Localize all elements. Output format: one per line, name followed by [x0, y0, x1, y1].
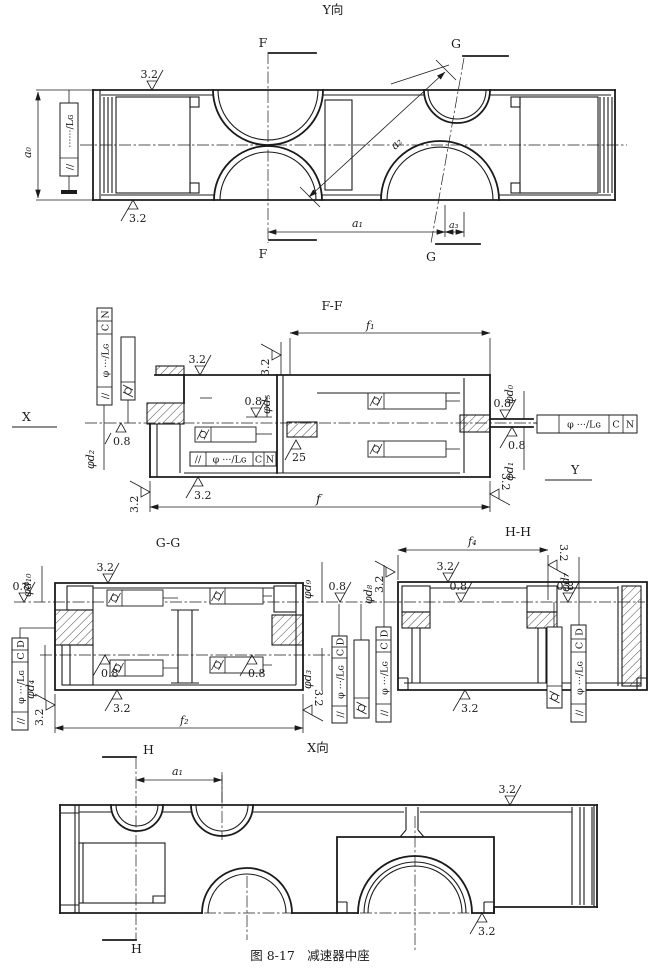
hh-rough-32-bottom: 3.2: [453, 690, 479, 715]
svg-text:3.2: 3.2: [373, 576, 386, 594]
x-rough-32-bottom: 3.2: [470, 913, 496, 938]
gg-rough-32-top: 3.2: [97, 561, 120, 583]
svg-text://: //: [336, 711, 347, 718]
svg-text:φ ···/Lɢ: φ ···/Lɢ: [101, 344, 112, 378]
figure-caption: 图 8-17 减速器中座: [250, 948, 370, 963]
ff-frame-cn: // φ ···/Lɢ C N: [190, 452, 276, 466]
svg-text:3.2: 3.2: [128, 496, 141, 514]
svg-text:C: C: [101, 324, 112, 331]
view-title-ff: F-F: [321, 298, 342, 313]
roughness-top-32: 3.2: [141, 68, 164, 90]
gg-outline: [55, 583, 303, 690]
view-top-y: Y向 F F G G a₀: [21, 2, 627, 264]
svg-text:3.2: 3.2: [499, 783, 517, 796]
svg-text:3.2: 3.2: [437, 560, 455, 573]
gg-rough-08-d9: 0.8: [329, 580, 352, 602]
hh-outline: [398, 582, 647, 690]
svg-text:φ ···/Lɢ: φ ···/Lɢ: [336, 665, 347, 699]
dimension-f1: f₁: [290, 319, 490, 374]
svg-text:0.8: 0.8: [329, 580, 347, 593]
dim-label-a3: a₃: [449, 220, 459, 231]
section-letter-f-bottom: F: [259, 246, 268, 261]
x-rough-32-top: 3.2: [499, 783, 522, 805]
svg-text:C: C: [575, 642, 586, 649]
dim-label-a1-bottom: a₁: [172, 765, 183, 778]
svg-text:N: N: [266, 455, 274, 466]
axis-label-y: Y: [545, 462, 592, 480]
svg-text:3.2: 3.2: [141, 68, 159, 81]
svg-text:D: D: [336, 637, 347, 645]
gg-rough-08-mid: 0.8: [93, 655, 119, 680]
frame-parallel-symbol: //: [65, 163, 76, 170]
svg-text:C: C: [16, 652, 27, 659]
svg-text:3.2: 3.2: [461, 702, 479, 715]
dimension-f2: f₂: [55, 694, 303, 733]
gg-frame-narrow: [354, 604, 369, 718]
svg-text:3.2: 3.2: [499, 473, 512, 491]
svg-text:0.8: 0.8: [494, 397, 512, 410]
view-title-gg: G-G: [156, 535, 180, 550]
svg-text:0.8: 0.8: [248, 667, 266, 680]
svg-text:D: D: [575, 628, 586, 636]
roughness-bottom-32: 3.2: [121, 200, 147, 225]
ff-rough-08-right-bottom: 0.8: [500, 427, 526, 452]
x-outline: [60, 805, 597, 913]
view-ff: F-F // φ ···/Lɢ C N: [12, 298, 637, 513]
svg-text:0.8: 0.8: [13, 580, 31, 593]
hh-rough-32-ext: 3.2: [548, 544, 570, 576]
section-letter-h-bottom: H: [131, 941, 142, 956]
dim-label-f2: f₂: [179, 714, 188, 727]
svg-text:3.2: 3.2: [113, 702, 131, 715]
svg-text:3.2: 3.2: [194, 489, 212, 502]
svg-text:3.2: 3.2: [97, 561, 115, 574]
svg-text:0.8: 0.8: [450, 580, 468, 593]
ff-rough-32-bottom: 3.2: [186, 477, 212, 502]
ff-rough-32-rotated-right: 3.2: [490, 473, 512, 505]
dia-label-d7: φd₇: [559, 572, 572, 592]
dimension-a2: a₂: [300, 60, 456, 207]
hh-rough-32-top: 3.2: [437, 560, 460, 582]
svg-text:Y: Y: [570, 462, 580, 477]
svg-text:3.2: 3.2: [189, 353, 207, 366]
dim-label-a2: a₂: [388, 135, 405, 152]
section-line-h: H H: [103, 742, 154, 956]
svg-text:3.2: 3.2: [129, 212, 147, 225]
svg-text://: //: [380, 709, 391, 716]
gg-rough-32-d8: 3.2: [373, 561, 395, 593]
svg-text://: //: [16, 717, 27, 724]
view-title-x: X向: [307, 740, 328, 755]
dim-label-a0: a₀: [21, 146, 34, 158]
svg-text:3.2: 3.2: [478, 925, 496, 938]
ff-rough-32-rotated-mid: 3.2: [259, 344, 281, 376]
svg-text:0.8: 0.8: [508, 439, 526, 452]
view-x: X向 H H a₁ 3.2: [60, 740, 597, 956]
svg-text:D: D: [16, 640, 27, 648]
svg-text://: //: [575, 709, 586, 716]
svg-text:3.2: 3.2: [33, 709, 46, 727]
svg-text:0.8: 0.8: [113, 435, 131, 448]
svg-text:D: D: [380, 629, 391, 637]
svg-text://: //: [101, 392, 112, 399]
svg-text://: //: [195, 455, 202, 466]
dim-label-f4: f₄: [467, 535, 476, 548]
view-title-y: Y向: [322, 2, 344, 17]
datum-frame-top: // ······/Lɢ: [60, 90, 78, 194]
svg-text:φ ···/Lɢ: φ ···/Lɢ: [380, 661, 391, 695]
ff-bearing-frame-right-bottom: [368, 441, 460, 457]
gg-rough-32-rotated-right: 3.2: [303, 689, 325, 721]
svg-text:C: C: [612, 420, 619, 431]
svg-text:C: C: [380, 642, 391, 649]
section-letter-g-top: G: [451, 36, 461, 51]
frame-tolerance-text: ······/Lɢ: [65, 114, 76, 147]
section-letter-f-top: F: [259, 35, 268, 50]
section-letter-g-bottom: G: [426, 249, 436, 264]
svg-text:φ ···/Lɢ: φ ···/Lɢ: [567, 420, 601, 431]
svg-text:C: C: [336, 649, 347, 656]
dia-label-d2: φd₂: [84, 450, 97, 469]
svg-text:C: C: [255, 455, 262, 466]
dim-label-f: f: [315, 491, 323, 506]
view-hh: H-H f₄ 3.2 0.8 0.8 3.2 φd₇: [398, 524, 647, 722]
ff-rough-32-top: 3.2: [189, 353, 212, 375]
svg-text:X: X: [22, 409, 31, 424]
ff-rough-08-left: 0.8: [105, 423, 131, 448]
dia-label-d5: φd₅: [260, 394, 273, 414]
dim-label-a1: a₁: [352, 217, 363, 230]
view-title-hh: H-H: [505, 524, 531, 539]
svg-text:N: N: [626, 420, 634, 431]
dia-label-d3: φd₃: [301, 670, 314, 689]
section-letter-h-top: H: [143, 742, 154, 757]
gg-frame-a: // φ ···/Lɢ C D: [332, 604, 347, 723]
svg-text:25: 25: [292, 451, 306, 464]
ff-bearing-frame-right-top: [368, 393, 460, 409]
engineering-drawing-page: Y向 F F G G a₀: [0, 0, 654, 971]
ff-rough-32-rotated-left: 3.2: [128, 481, 150, 513]
svg-text:N: N: [101, 310, 112, 318]
ff-rough-25: 25: [285, 440, 306, 464]
svg-text:3.2: 3.2: [557, 544, 570, 562]
dimension-f4: f₄: [398, 535, 548, 600]
hh-frame-cd: // φ ···/Lɢ C D: [571, 625, 586, 722]
drawing-canvas: Y向 F F G G a₀: [0, 0, 654, 971]
dimension-a1-bottom: a₁: [136, 765, 222, 802]
ff-bearing-frame-left: [195, 427, 272, 442]
svg-text:0.8: 0.8: [101, 667, 119, 680]
svg-text:3.2: 3.2: [259, 359, 272, 377]
section-line-g: G G: [426, 36, 508, 264]
hh-rough-08-left: 0.8: [450, 580, 473, 602]
dia-label-d9: φd₉: [301, 579, 314, 599]
section-line-f: F F: [259, 35, 316, 261]
axis-label-x: X: [12, 409, 57, 427]
dim-label-f1: f₁: [365, 319, 374, 332]
gg-rough-32-bottom: 3.2: [105, 690, 131, 715]
ff-frame-right: φ ···/Lɢ C N: [533, 415, 637, 433]
svg-text:3.2: 3.2: [312, 689, 325, 707]
dia-label-d4: φd₄: [24, 680, 37, 699]
svg-text:φ ···/Lɢ: φ ···/Lɢ: [213, 455, 247, 466]
svg-text:φ ···/Lɢ: φ ···/Lɢ: [575, 661, 586, 695]
